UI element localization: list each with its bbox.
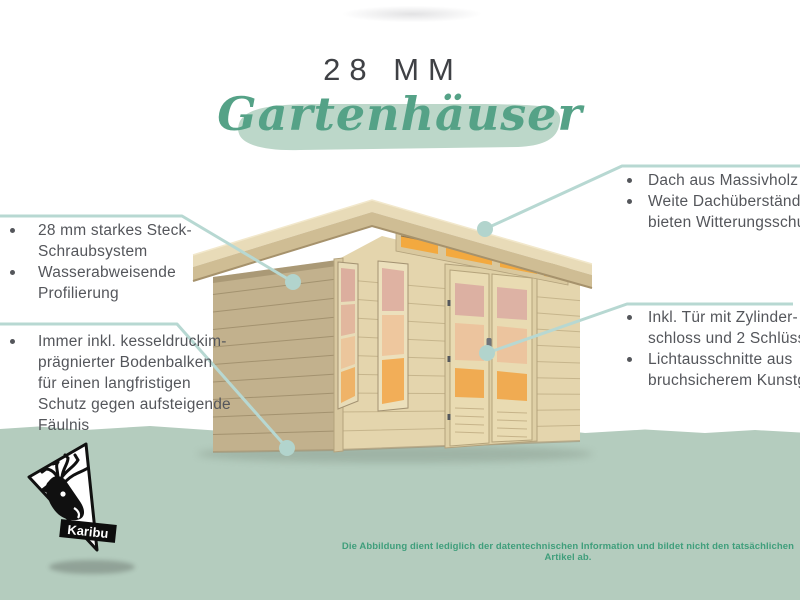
callout-dot-base: [279, 440, 295, 456]
feature-line: Wasserabweisende: [38, 262, 176, 283]
bullet-icon: [10, 339, 15, 344]
deer-eye-icon: [60, 491, 65, 496]
bullet-icon: [10, 270, 15, 275]
feature-line: Weite Dachüberstände: [648, 191, 800, 212]
feature-line: Schutz gegen aufsteigende: [38, 394, 231, 415]
feature-line: Dach aus Massivholz: [648, 170, 798, 191]
feature-line: Profilierung: [38, 283, 176, 304]
size-headline: 28 MM: [0, 52, 786, 88]
feature-list-door: Inkl. Tür mit Zylinder- schloss und 2 Sc…: [627, 307, 800, 391]
bullet-icon: [627, 199, 632, 204]
feature-line: bieten Witterungsschutz: [648, 212, 800, 233]
feature-bullet: Lichtausschnitte aus bruchsicherem Kunst…: [627, 349, 800, 391]
feature-line: Fäulnis: [38, 415, 231, 436]
infographic-page: Karibu 28 MM Gartenhäuser 28 mm starkes …: [0, 0, 800, 600]
feature-line: Lichtausschnitte aus: [648, 349, 800, 370]
front-window: [378, 261, 408, 411]
feature-list-wall-system: 28 mm starkes Steck- Schraubsystem Wasse…: [10, 220, 240, 304]
product-headline: Gartenhäuser: [0, 88, 800, 140]
feature-line: 28 mm starkes Steck-: [38, 220, 192, 241]
feature-list-foundation: Immer inkl. kesseldruckim- prägnierter B…: [10, 331, 250, 436]
callout-dot-roof: [477, 221, 493, 237]
logo-shadow: [49, 560, 135, 574]
callout-dot-door: [479, 345, 495, 361]
disclaimer-text: Die Abbildung dient lediglich der datent…: [336, 541, 800, 563]
feature-line: schloss und 2 Schlüsseln: [648, 328, 800, 349]
bullet-icon: [627, 357, 632, 362]
feature-line: Inkl. Tür mit Zylinder-: [648, 307, 800, 328]
feature-bullet: Weite Dachüberstände bieten Witterungssc…: [627, 191, 800, 233]
feature-bullet: 28 mm starkes Steck- Schraubsystem: [10, 220, 240, 262]
feature-list-roof: Dach aus Massivholz Weite Dachüberstände…: [627, 170, 800, 233]
feature-bullet: Immer inkl. kesseldruckim- prägnierter B…: [10, 331, 250, 436]
feature-line: Schraubsystem: [38, 241, 192, 262]
feature-bullet: Inkl. Tür mit Zylinder- schloss und 2 Sc…: [627, 307, 800, 349]
feature-line: prägnierter Bodenbalken: [38, 352, 231, 373]
garden-house-illustration: [193, 200, 592, 452]
callout-dot-wall: [285, 274, 301, 290]
feature-line: bruchsicherem Kunstglas: [648, 370, 800, 391]
feature-bullet: Wasserabweisende Profilierung: [10, 262, 240, 304]
feature-line: für einen langfristigen: [38, 373, 231, 394]
bullet-icon: [627, 315, 632, 320]
side-window: [338, 262, 358, 409]
bullet-icon: [627, 178, 632, 183]
bullet-icon: [10, 228, 15, 233]
feature-bullet: Dach aus Massivholz: [627, 170, 800, 191]
feature-line: Immer inkl. kesseldruckim-: [38, 331, 231, 352]
